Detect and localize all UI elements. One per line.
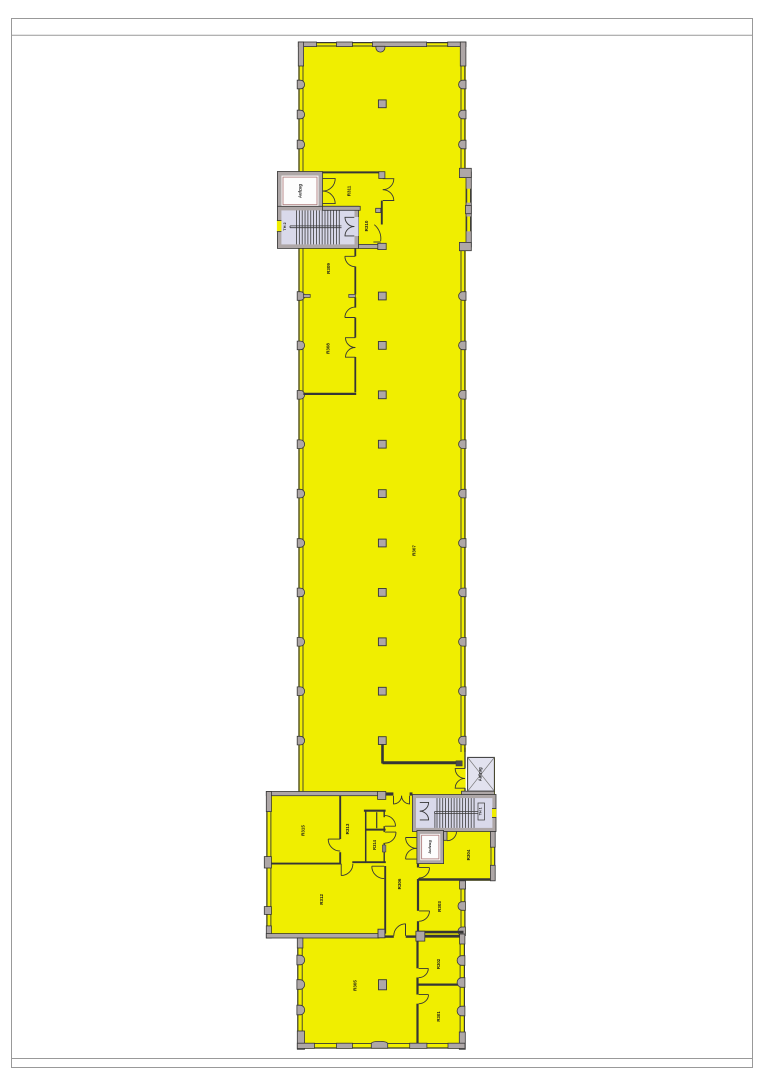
svg-text:R315: R315 <box>301 825 306 836</box>
svg-text:R314: R314 <box>372 839 377 850</box>
svg-text:R311: R311 <box>347 185 352 196</box>
svg-text:R301: R301 <box>436 1011 441 1022</box>
svg-text:R304: R304 <box>466 849 471 860</box>
svg-text:R305: R305 <box>353 980 358 991</box>
svg-text:R302: R302 <box>436 958 441 969</box>
svg-text:Aufzug: Aufzug <box>478 767 483 781</box>
svg-text:R312: R312 <box>319 894 324 905</box>
svg-text:TH 2: TH 2 <box>283 222 287 230</box>
svg-text:TH 1: TH 1 <box>478 807 482 815</box>
svg-text:Aufzug: Aufzug <box>427 840 432 854</box>
svg-text:R303: R303 <box>437 901 442 912</box>
svg-text:R306: R306 <box>397 878 402 889</box>
svg-text:R308: R308 <box>326 343 331 354</box>
svg-text:Aufzug: Aufzug <box>298 184 303 198</box>
svg-text:R310: R310 <box>364 220 369 231</box>
svg-text:R309: R309 <box>326 263 331 274</box>
svg-text:R307: R307 <box>412 545 417 556</box>
svg-text:R313: R313 <box>345 823 350 834</box>
